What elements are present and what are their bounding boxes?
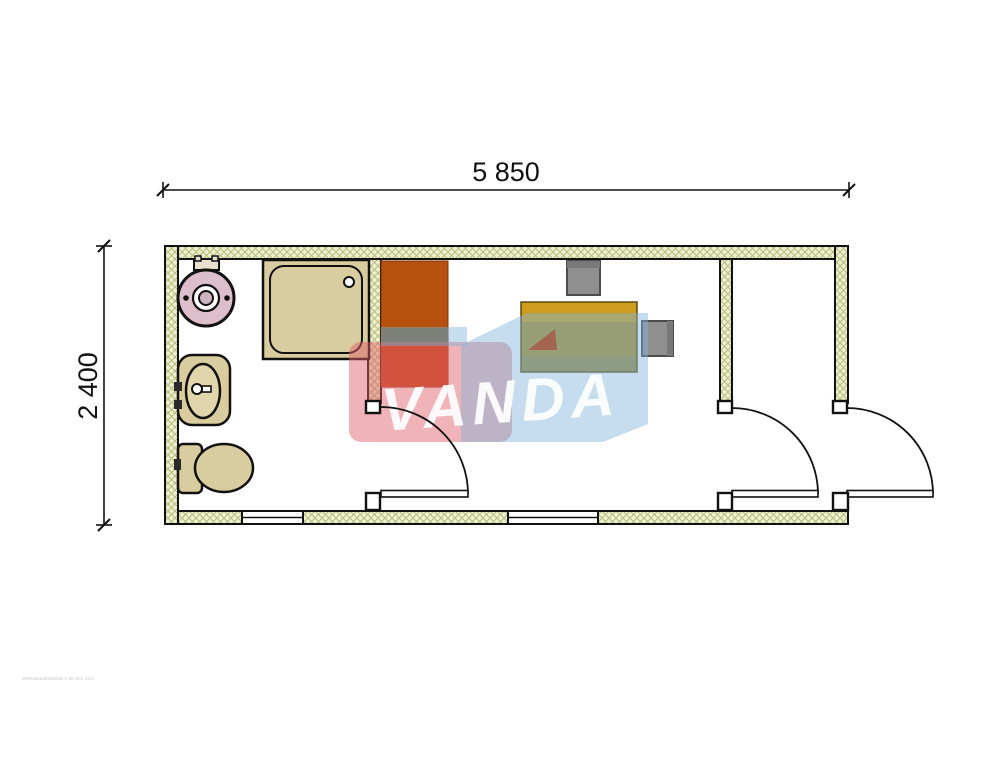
fine-print: SWRelatedSchedule A 95 HCL VC5 [22, 676, 94, 681]
tap-hot [174, 382, 182, 391]
brand-watermark: VANDA [349, 313, 648, 444]
door-jamb [366, 401, 380, 413]
width-dimension-label: 5 850 [472, 157, 540, 187]
shower-drain [344, 277, 354, 287]
door-jamb [718, 401, 732, 413]
dimension-height: 2 400 [73, 240, 112, 531]
watermark-blue-band [381, 327, 467, 346]
window-office [508, 511, 598, 524]
partition-entry [720, 259, 732, 403]
wall-right [835, 246, 848, 403]
door-entrance [833, 401, 933, 510]
floor-plan-canvas: VANDA 5 850 [0, 0, 1000, 757]
door-office [718, 401, 818, 510]
faucet-spout [192, 384, 202, 394]
dimension-width: 5 850 [157, 157, 855, 198]
desk-chair [567, 261, 600, 295]
height-dimension-label: 2 400 [73, 352, 103, 420]
faucet-handle [202, 386, 211, 392]
toilet-bowl [195, 444, 253, 492]
door-jamb [833, 401, 847, 413]
door-jamb [833, 493, 848, 510]
toilet [174, 444, 253, 493]
wall-top [165, 246, 848, 259]
water-heater [178, 256, 234, 326]
door-jamb [366, 493, 380, 510]
toilet-valve [174, 459, 181, 470]
shower-tray [263, 260, 369, 359]
window-bathroom [242, 511, 303, 524]
tap-cold [174, 400, 182, 409]
washbasin [174, 355, 230, 425]
door-jamb [718, 493, 732, 510]
floor-plan-drawing: VANDA 5 850 [0, 0, 1000, 757]
